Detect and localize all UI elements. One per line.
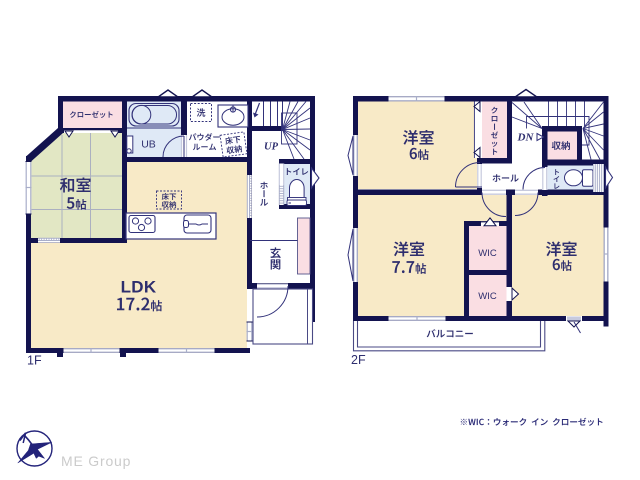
svg-text:2F: 2F (351, 353, 366, 367)
svg-text:UB: UB (141, 139, 156, 151)
svg-text:WIC: WIC (478, 248, 497, 259)
svg-text:DN: DN (517, 132, 535, 144)
svg-text:ME Group: ME Group (61, 453, 131, 469)
svg-text:UP: UP (264, 142, 279, 153)
svg-text:WIC: WIC (478, 291, 497, 302)
svg-text:LDK: LDK (121, 278, 157, 297)
svg-text:1F: 1F (27, 354, 42, 368)
